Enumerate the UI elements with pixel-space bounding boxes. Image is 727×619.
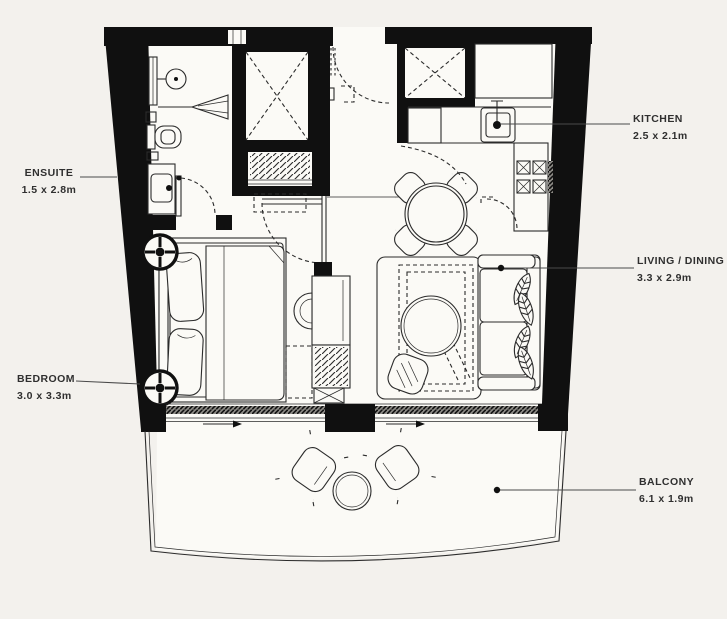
room-dims: 3.3 x 2.9m <box>637 270 724 287</box>
coffee-table <box>401 296 461 356</box>
room-dims: 1.5 x 2.8m <box>16 182 82 199</box>
sofa <box>478 255 540 390</box>
toilet <box>147 125 181 149</box>
duvet <box>206 246 284 400</box>
label-bedroom: BEDROOM 3.0 x 3.3m <box>17 371 75 405</box>
room-name: KITCHEN <box>633 111 688 128</box>
downlight <box>143 235 177 269</box>
balcony-table <box>333 472 371 510</box>
room-dims: 3.0 x 3.3m <box>17 388 75 405</box>
label-living-dining: LIVING / DINING 3.3 x 2.9m <box>637 253 724 287</box>
floor-plan: ENSUITE 1.5 x 2.8m BEDROOM 3.0 x 3.3m KI… <box>0 0 727 619</box>
label-kitchen: KITCHEN 2.5 x 2.1m <box>633 111 688 145</box>
room-dims: 6.1 x 1.9m <box>639 491 694 508</box>
wardrobe <box>312 345 350 403</box>
room-name: ENSUITE <box>16 165 82 182</box>
label-balcony: BALCONY 6.1 x 1.9m <box>639 474 694 508</box>
tall-cabinet <box>475 44 552 98</box>
room-name: LIVING / DINING <box>637 253 724 270</box>
room-name: BEDROOM <box>17 371 75 388</box>
downlight <box>143 371 177 405</box>
double-bed <box>159 238 286 402</box>
room-dims: 2.5 x 2.1m <box>633 128 688 145</box>
floor-plan-drawing <box>0 0 727 619</box>
service-shaft-block <box>232 46 330 196</box>
sliding-door <box>166 406 325 414</box>
label-ensuite: ENSUITE 1.5 x 2.8m <box>16 165 82 199</box>
bedroom-leader <box>76 381 140 384</box>
room-name: BALCONY <box>639 474 694 491</box>
sliding-door <box>375 406 538 414</box>
